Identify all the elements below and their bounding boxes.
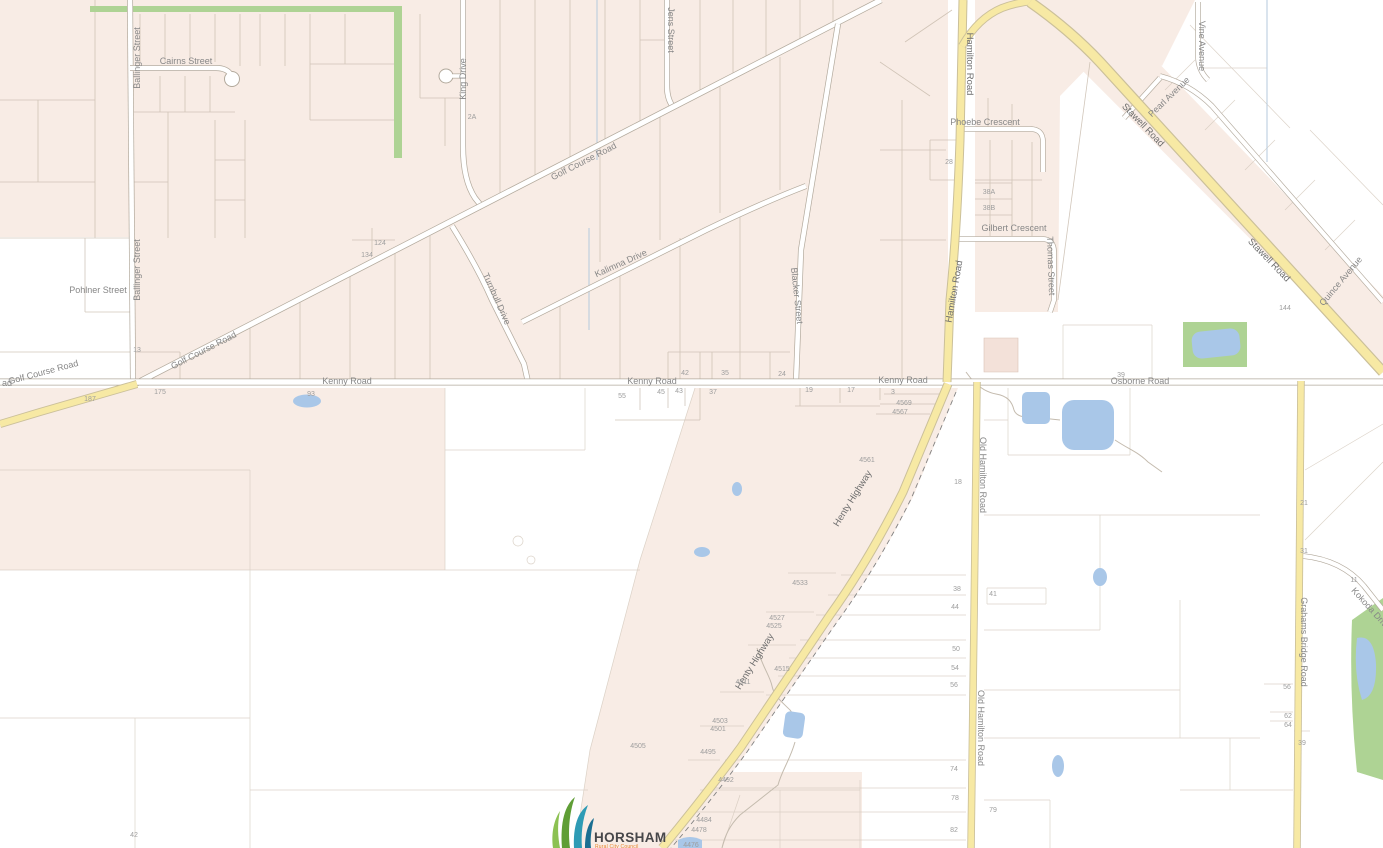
street-label-king: King Drive <box>458 58 468 100</box>
farm-dam <box>1052 755 1064 777</box>
parcel-number: 31 <box>1300 548 1308 555</box>
parcel-number: 45 <box>657 389 665 396</box>
parcel-number: 4484 <box>696 817 712 824</box>
street-label-hamilton-1: Hamilton Road <box>964 33 975 96</box>
parcel-number: 44 <box>951 604 959 611</box>
parcel-number: 4561 <box>859 457 875 464</box>
road-hamilton-road <box>947 0 963 382</box>
storage-dam <box>1062 400 1114 450</box>
parcel-number: 4527 <box>769 615 785 622</box>
parcel-number: 4533 <box>792 580 808 587</box>
parcel-number: 42 <box>130 832 138 839</box>
logo-grass-icon <box>552 811 560 848</box>
park-pond <box>1191 328 1242 360</box>
parcel-number: 4501 <box>710 726 726 733</box>
parcel-number: 4492 <box>718 777 734 784</box>
road-old-hamilton-road <box>971 382 977 848</box>
logo-name: HORSHAM <box>594 830 667 845</box>
street-label-phoebe: Phoebe Crescent <box>950 117 1020 127</box>
parcel-number: 24 <box>778 371 786 378</box>
farm-dam <box>694 547 710 557</box>
parcel-number: 43 <box>675 388 683 395</box>
parcel-number: 2A <box>468 114 477 121</box>
parcel-number: 19 <box>805 387 813 394</box>
street-label-west-edge-fragment: ad <box>2 378 12 388</box>
parcel-number: 56 <box>950 682 958 689</box>
parcel-number: 37 <box>709 389 717 396</box>
parcel-number: 55 <box>618 393 626 400</box>
parcel-number: 11 <box>1350 577 1357 584</box>
parcel-number: 38A <box>983 189 996 196</box>
parcel-number: 3 <box>891 389 895 396</box>
farm-dam <box>782 711 805 740</box>
parcel-number: 4567 <box>892 409 908 416</box>
parcel-number: 56 <box>1283 684 1291 691</box>
parcel-number: 4476 <box>683 842 699 848</box>
logo-grass-icon <box>562 797 575 848</box>
parcel-number: 28 <box>945 159 953 166</box>
parcel-number: 79 <box>989 807 997 814</box>
street-label-jens: Jens Street <box>666 7 676 53</box>
map-viewport[interactable]: Ballinger Street Ballinger Street Cairns… <box>0 0 1383 848</box>
parcel-number: 4525 <box>766 623 782 630</box>
walking-track-green-strip <box>90 6 398 12</box>
parcel-number: 17 <box>847 387 855 394</box>
farm-dam <box>732 482 742 496</box>
parcel-number: 4511 <box>735 679 750 686</box>
farm-dam <box>1093 568 1107 586</box>
parcel-number: 4515 <box>774 666 790 673</box>
parcel-number: 64 <box>1284 722 1292 729</box>
parcel-number: 39 <box>1298 740 1306 747</box>
parcel-number: 4569 <box>896 400 912 407</box>
map-canvas[interactable]: Ballinger Street Ballinger Street Cairns… <box>0 0 1383 848</box>
parcel-number: 41 <box>989 591 997 598</box>
parcel-number: 39 <box>1117 372 1125 379</box>
street-label-old-hamilton-1: Old Hamilton Road <box>978 437 988 513</box>
street-label-kenny-3: Kenny Road <box>878 375 928 385</box>
parcel-number: 13 <box>133 347 141 354</box>
street-label-pohlner: Pohlner Street <box>69 285 127 295</box>
parcel-number: 38B <box>983 205 996 212</box>
parcel-number: 82 <box>950 827 958 834</box>
parcel-number: 4478 <box>691 827 707 834</box>
street-label-thomas: Thomas Street <box>1045 236 1057 296</box>
street-label-ballinger-2: Ballinger Street <box>132 239 142 301</box>
parcel-number: 134 <box>361 252 373 259</box>
parcel-number: 62 <box>1284 713 1292 720</box>
storage-dam <box>1022 392 1050 424</box>
parcel-number: 93 <box>307 391 315 398</box>
logo-subtitle: Rural City Council <box>595 844 639 848</box>
street-label-vine: Vine Avenue <box>1197 21 1207 71</box>
street-label-grahams-bridge: Grahams Bridge Road <box>1299 597 1309 687</box>
parcel-number: 42 <box>681 370 689 377</box>
zone-layer <box>0 0 1383 848</box>
street-label-gilbert: Gilbert Crescent <box>981 223 1047 233</box>
street-label-kenny-2: Kenny Road <box>627 376 677 386</box>
parcel-number: 38 <box>953 586 961 593</box>
parcel-number: 18 <box>954 479 962 486</box>
parcel-number: 124 <box>374 240 386 247</box>
street-label-kenny-1: Kenny Road <box>322 376 372 386</box>
parcel-number: 21 <box>1300 500 1308 507</box>
parcel-number: 4495 <box>700 749 716 756</box>
parcel-number: 144 <box>1279 305 1291 312</box>
parcel-number: 78 <box>951 795 959 802</box>
parcel-number: 35 <box>721 370 729 377</box>
parcel-number: 54 <box>951 665 959 672</box>
parcel-number: 4505 <box>630 743 646 750</box>
parcel-number: 175 <box>154 389 166 396</box>
parcel-number: 4503 <box>712 718 728 725</box>
parcel-number: 74 <box>950 766 958 773</box>
street-label-cairns: Cairns Street <box>160 56 213 66</box>
parcel-number: 187 <box>84 396 96 403</box>
parcel-number: 50 <box>952 646 960 653</box>
street-label-ballinger-1: Ballinger Street <box>132 27 142 89</box>
street-label-old-hamilton-2: Old Hamilton Road <box>976 690 986 766</box>
